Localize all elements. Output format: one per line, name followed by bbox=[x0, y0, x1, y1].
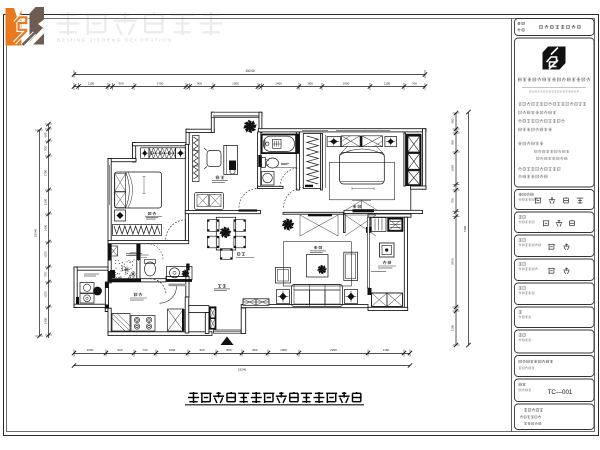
svg-text:850: 850 bbox=[226, 348, 231, 352]
svg-text:500: 500 bbox=[451, 118, 455, 123]
svg-text:1500: 1500 bbox=[232, 82, 239, 86]
svg-text:7300: 7300 bbox=[463, 225, 467, 232]
svg-text:600: 600 bbox=[451, 140, 455, 145]
svg-text:15240: 15240 bbox=[245, 69, 255, 73]
svg-text:1250: 1250 bbox=[44, 251, 48, 258]
svg-text:900: 900 bbox=[118, 82, 123, 86]
svg-text:1200: 1200 bbox=[44, 198, 48, 205]
svg-text:BEIJING JICHENG DECORATION: BEIJING JICHENG DECORATION bbox=[57, 38, 173, 44]
svg-text:1000: 1000 bbox=[280, 348, 287, 352]
svg-text:TC—001: TC—001 bbox=[548, 389, 573, 396]
svg-text:2950: 2950 bbox=[451, 258, 455, 265]
svg-text:700: 700 bbox=[44, 146, 48, 151]
svg-text:700: 700 bbox=[412, 82, 417, 86]
svg-text:750: 750 bbox=[44, 272, 48, 277]
svg-text:1150: 1150 bbox=[383, 348, 390, 352]
svg-text:1700: 1700 bbox=[44, 169, 48, 176]
svg-text:1050: 1050 bbox=[87, 348, 94, 352]
svg-text:15240: 15240 bbox=[238, 368, 247, 372]
svg-text:700: 700 bbox=[142, 348, 147, 352]
svg-text:900: 900 bbox=[117, 348, 122, 352]
svg-text:10640: 10640 bbox=[34, 228, 38, 237]
svg-text:2250: 2250 bbox=[330, 348, 337, 352]
svg-text:1400: 1400 bbox=[275, 82, 282, 86]
svg-text:800: 800 bbox=[308, 82, 313, 86]
svg-text:1100: 1100 bbox=[451, 325, 455, 332]
svg-text:1150: 1150 bbox=[88, 82, 95, 86]
svg-text:1750: 1750 bbox=[157, 82, 164, 86]
svg-text:1250: 1250 bbox=[44, 291, 48, 298]
svg-text:1150: 1150 bbox=[384, 82, 391, 86]
svg-text:900: 900 bbox=[199, 348, 204, 352]
svg-text:1600: 1600 bbox=[343, 82, 350, 86]
svg-text:900: 900 bbox=[197, 82, 202, 86]
svg-text:600: 600 bbox=[44, 132, 48, 137]
svg-text:800: 800 bbox=[252, 348, 257, 352]
svg-text:1400: 1400 bbox=[44, 224, 48, 231]
svg-text:1400: 1400 bbox=[44, 317, 48, 324]
svg-text:1000: 1000 bbox=[169, 348, 176, 352]
svg-text:1050: 1050 bbox=[451, 165, 455, 172]
svg-text:750: 750 bbox=[451, 198, 455, 203]
